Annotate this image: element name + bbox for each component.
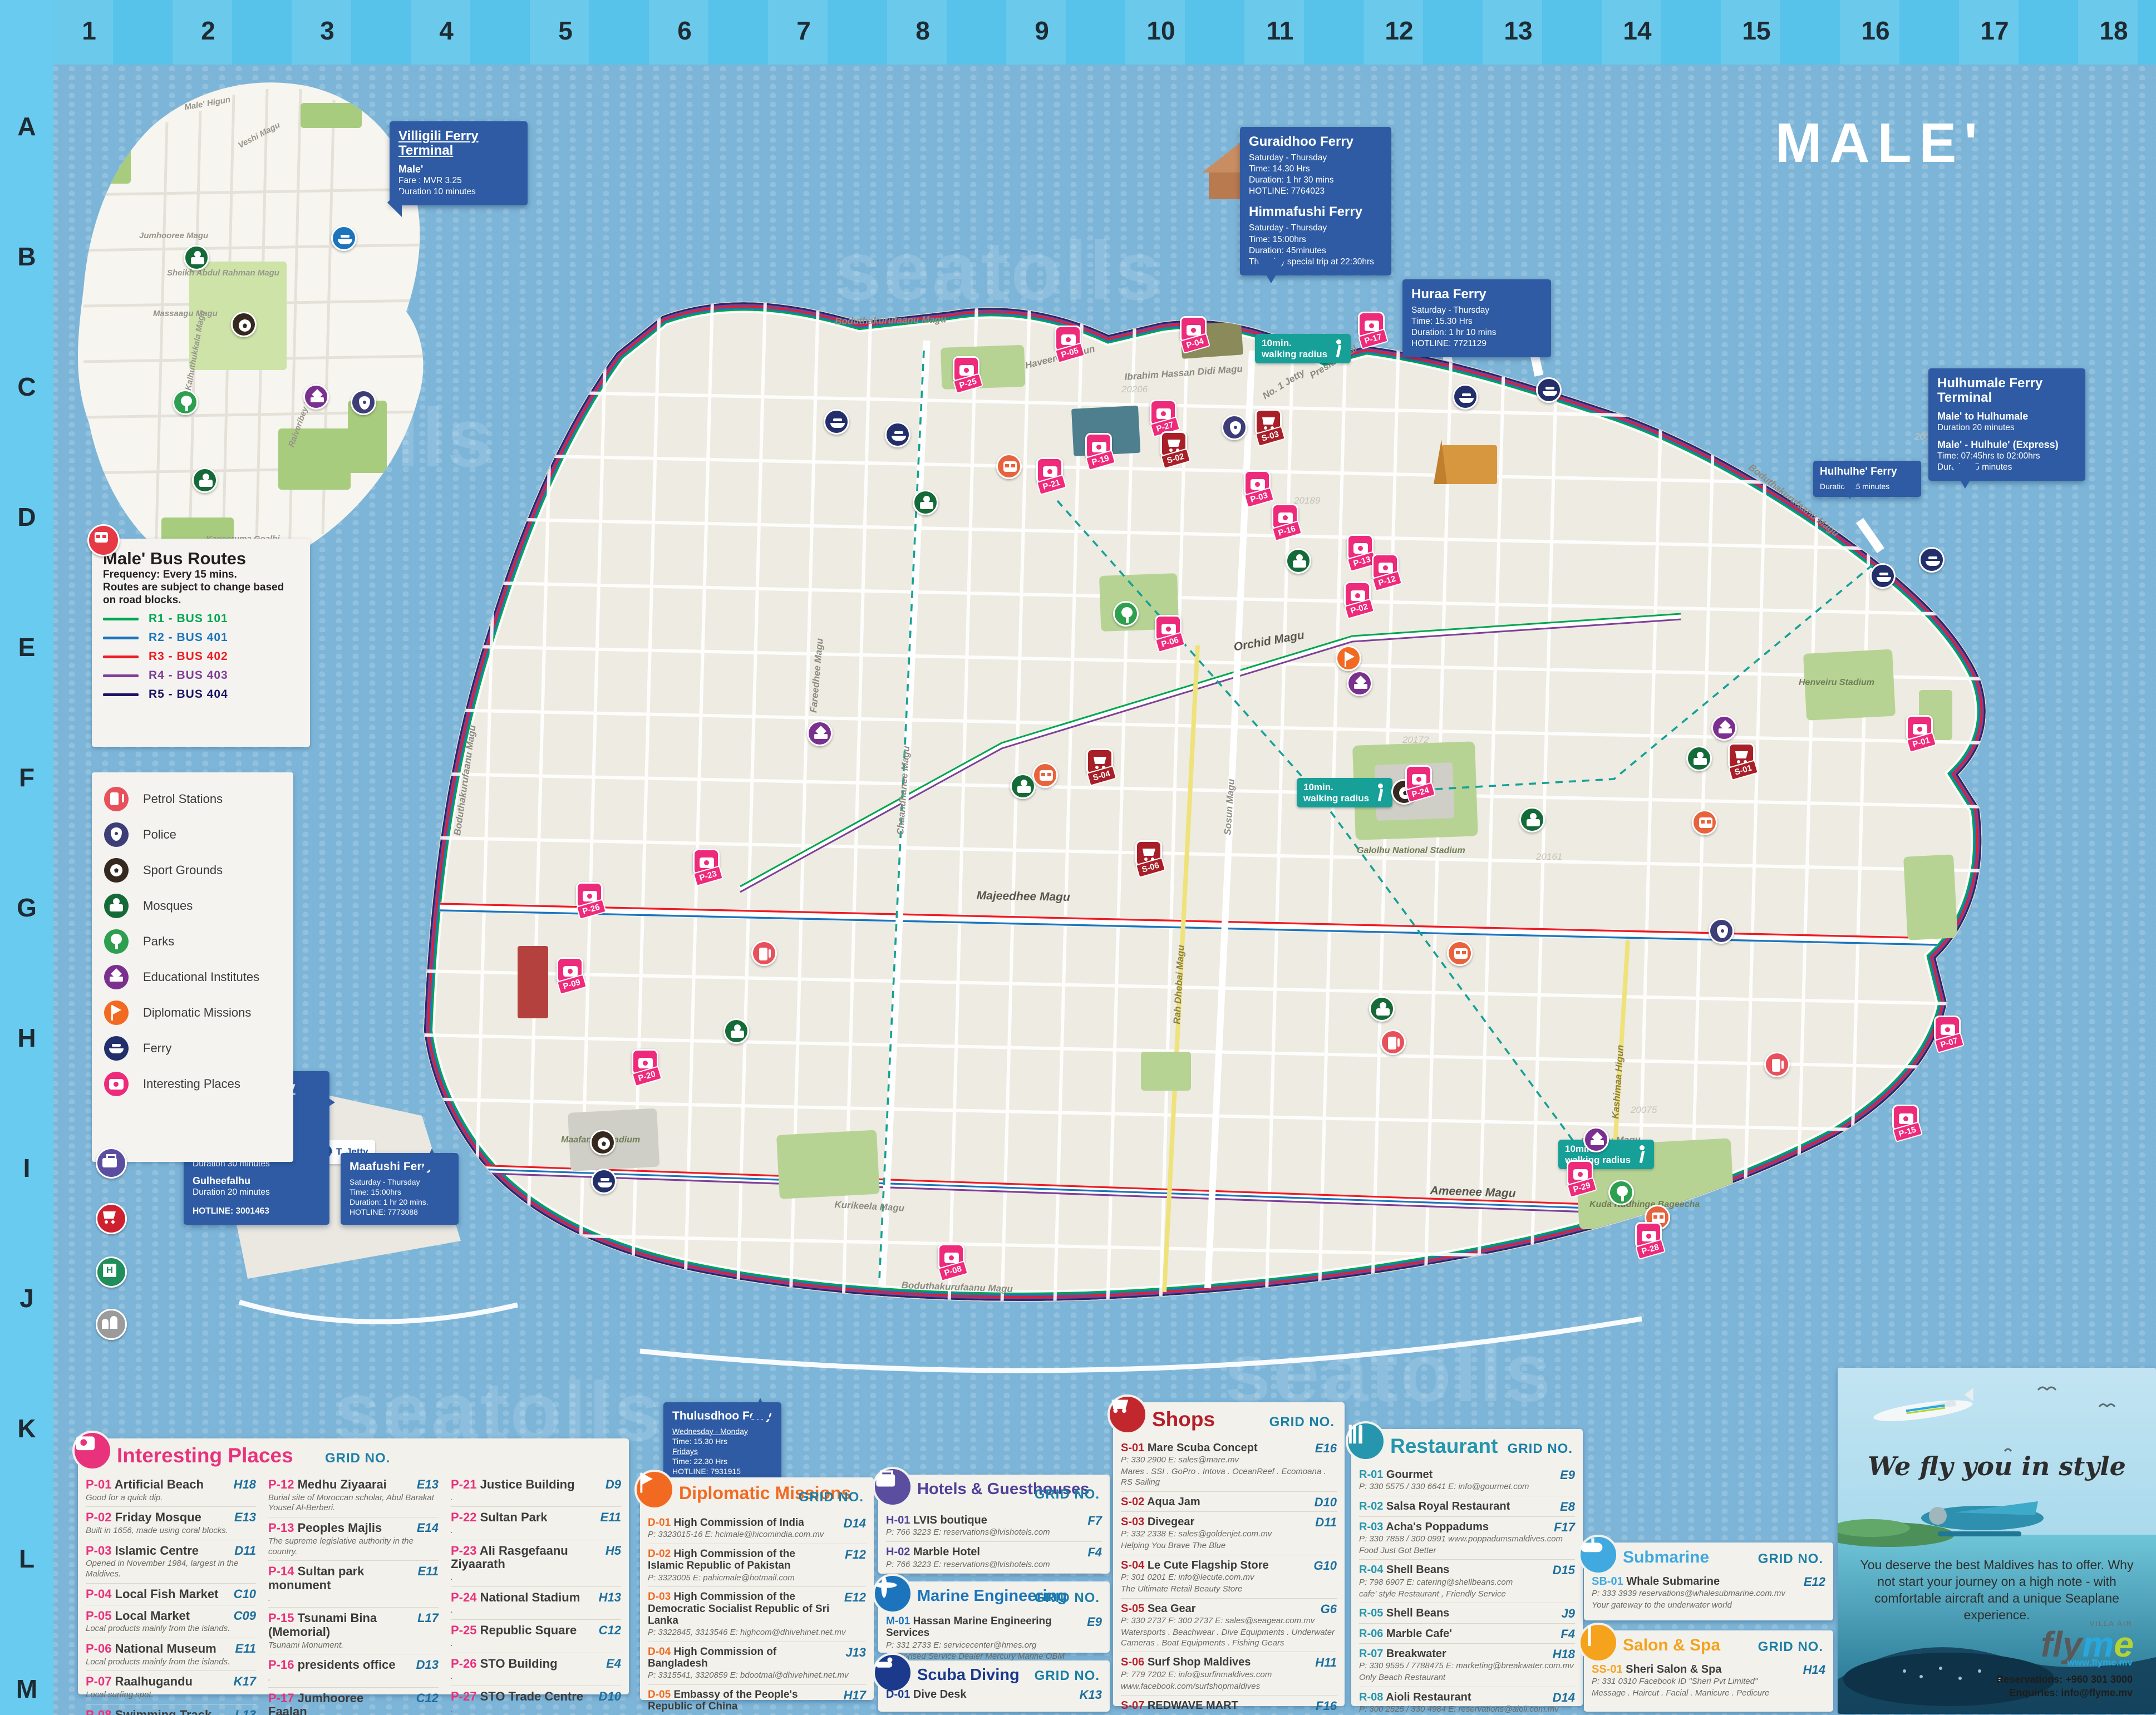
block-number: 20206 (1121, 384, 1148, 395)
bus-icon (87, 524, 120, 556)
panel-title: Salon & Spa (1623, 1636, 1720, 1655)
scuba-list: D-01 Dive DeskK13 (886, 1688, 1102, 1704)
legend-icon (104, 858, 129, 883)
education-icon (1583, 1127, 1609, 1152)
legend-row: Mosques (104, 894, 281, 918)
diplomatic-list: D-01 High Commission of IndiaD14 P: 3323… (648, 1513, 866, 1715)
panel-title: Scuba Diving (917, 1666, 1020, 1684)
legend-row: Diplomatic Missions (104, 1001, 281, 1025)
legend-row: Sport Grounds (104, 858, 281, 883)
bus-note: Routes are subject to change based on ro… (103, 581, 299, 607)
mosque-icon (1686, 746, 1712, 771)
directory-entry: H-02 Marble HotelF4 P: 766 3223 E: reser… (886, 1542, 1102, 1574)
police-icon (1222, 415, 1247, 440)
map-pin: P-05 (1055, 326, 1081, 355)
directory-entry: SS-01 Sheri Salon & SpaH14 P: 331 0310 F… (1592, 1659, 1825, 1702)
police-icon (351, 390, 376, 415)
map-pin: P-04 (1180, 316, 1207, 346)
education-icon (807, 721, 833, 746)
panel-title: Interesting Places (117, 1444, 293, 1467)
directory-entry: D-01 Dive DeskK13 (886, 1688, 1102, 1704)
street-label: Sheikh Abdul Rahman Magu (167, 268, 279, 278)
map-pin: P-28 (1635, 1222, 1662, 1251)
directory-entry: P-26 STO BuildingE4 . (451, 1653, 621, 1686)
submarine-list: SB-01 Whale SubmarineE12 P: 333 3939 res… (1592, 1571, 1825, 1614)
legend-row: Ferry (104, 1036, 281, 1061)
ad-body: You deserve the best Maldives has to off… (1854, 1557, 2139, 1624)
map-pin: S-04 (1086, 748, 1113, 778)
route-label: R2 - BUS 401 (149, 631, 228, 644)
legend-icon (104, 787, 129, 811)
grid-no-label: GRID NO. (1035, 1668, 1100, 1684)
directory-entry: R-07 BreakwaterH18 P: 330 9595 / 7788475… (1359, 1644, 1575, 1687)
panel-hotels: Hotels & Guesthouses GRID NO. H-01 LVIS … (878, 1475, 1110, 1574)
shops-list: S-01 Mare Scuba ConceptE16 P: 330 2900 E… (1121, 1438, 1337, 1715)
hulhumale-ferry-terminal-callout: Hulhumale Ferry Terminal Male' to Hulhum… (1928, 368, 2085, 481)
panel-restaurant: Restaurant GRID NO. R-01 GourmetE9 P: 33… (1351, 1429, 1583, 1706)
maafushi-ferry-callout: Maafushi Ferry Saturday - Thursday Time:… (341, 1153, 459, 1225)
panel-shops: Shops GRID NO. S-01 Mare Scuba ConceptE1… (1113, 1402, 1345, 1706)
map-pin: S-03 (1255, 409, 1282, 438)
map-pin: S-06 (1135, 840, 1162, 870)
education-icon (1347, 671, 1372, 696)
bus-route-row: R4 - BUS 403 (103, 669, 299, 682)
street-label: Majeedhee Magu (977, 889, 1070, 904)
map-pin: P-24 (1405, 765, 1432, 795)
flag-icon (634, 1470, 675, 1510)
legend-icon (104, 1036, 129, 1061)
panel-submarine: Submarine GRID NO. SB-01 Whale Submarine… (1584, 1542, 1833, 1620)
landmark-icon (96, 1309, 127, 1340)
route-line-swatch (103, 618, 139, 620)
thulusdhoo-ferry-callout: Thulusdhoo Ferry Wednesday - Monday Time… (663, 1402, 781, 1485)
fork-icon (1346, 1421, 1386, 1461)
salon-list: SS-01 Sheri Salon & SpaH14 P: 331 0310 F… (1592, 1659, 1825, 1702)
panel-diplomatic-missions: Diplomatic Missions GRID NO. D-01 High C… (640, 1477, 874, 1700)
directory-entry: P-25 Republic SquareC12 . (451, 1620, 621, 1653)
directory-entry: P-22 Sultan ParkE11 . (451, 1507, 621, 1540)
map-pin: P-08 (938, 1244, 964, 1273)
diver-icon (873, 1653, 913, 1693)
directory-entry: D-04 High Commission of BangladeshJ13 P:… (648, 1642, 866, 1685)
directory-entry: P-12 Medhu ZiyaaraiE13 Burial site of Mo… (268, 1474, 439, 1517)
legend-row: Interesting Places (104, 1072, 281, 1096)
panel-scuba-diving: Scuba Diving GRID NO. D-01 Dive DeskK13 (878, 1660, 1110, 1712)
pedestrian-icon (1636, 1145, 1647, 1164)
legend-title: Male' Bus Routes (103, 549, 299, 569)
sport-ground-icon (590, 1130, 616, 1155)
grid-no-label: GRID NO. (1035, 1590, 1100, 1606)
mosque-icon (723, 1018, 749, 1044)
route-label: R1 - BUS 101 (149, 612, 228, 625)
bus-routes-legend: Male' Bus Routes Frequency: Every 15 min… (92, 539, 310, 747)
area-label: Henveiru Stadium (1799, 678, 1874, 688)
bus-stop-icon (1692, 810, 1717, 835)
area-label: Galolhu National Stadium (1357, 846, 1465, 856)
walking-radius-badge: 10min.walking radius (1297, 778, 1392, 807)
ad-contacts: Reservations: +960 301 3000 Enquiries: i… (1996, 1673, 2133, 1700)
education-icon (303, 384, 329, 410)
hulhulhe-ferry-callout: Hulhulhe' Ferry Duration 15 minutes (1813, 461, 1921, 497)
legend-label: Mosques (143, 899, 193, 913)
petrol-icon (1380, 1029, 1406, 1055)
directory-entry: P-05 Local MarketC09 Local products main… (86, 1605, 256, 1638)
directory-entry: P-24 National StadiumH13 . (451, 1587, 621, 1620)
directory-entry: S-06 Surf Shop MaldivesH11 P: 779 7202 E… (1121, 1652, 1337, 1696)
ferry-icon (1453, 384, 1478, 410)
route-line-swatch (103, 693, 139, 696)
diplomatic-icon (1336, 645, 1361, 671)
park-icon (1608, 1180, 1634, 1205)
panel-title: Restaurant (1390, 1435, 1498, 1458)
block-number: 20161 (1536, 851, 1562, 863)
ad-tagline: We fly you in style (1838, 1451, 2156, 1481)
map-pin: P-02 (1344, 581, 1371, 611)
flyme-advert: We fly you in style You deserve the best… (1838, 1368, 2156, 1714)
panel-interesting-places: Interesting Places GRID NO. P-01 Artific… (78, 1438, 629, 1694)
route-line-swatch (103, 656, 139, 658)
legend-icon (104, 1072, 129, 1096)
route-line-swatch (103, 637, 139, 639)
legend-row: Parks (104, 929, 281, 954)
directory-entry: D-02 High Commission of the Islamic Repu… (648, 1544, 866, 1587)
street-label: Jumhooree Magu (139, 231, 208, 240)
directory-entry: D-03 High Commission of the Democratic S… (648, 1587, 866, 1642)
panel-marine-engineering: Marine Engineering GRID NO. M-01 Hassan … (878, 1581, 1110, 1653)
mosque-icon (913, 490, 938, 515)
legend-label: Interesting Places (143, 1077, 240, 1091)
bus-route-row: R3 - BUS 402 (103, 650, 299, 663)
map-pin: P-17 (1358, 312, 1385, 341)
ferry-icon (824, 409, 849, 435)
map-pin: P-23 (693, 849, 720, 878)
directory-entry: S-07 REDWAVE MARTF16 (1121, 1696, 1337, 1715)
restaurant-list: R-01 GourmetE9 P: 330 5575 / 330 6641 E:… (1359, 1465, 1575, 1715)
directory-entry: R-03 Acha's PoppadumsF17 P: 330 7858 / 3… (1359, 1517, 1575, 1560)
street-label: Boduthakurufaanu Magu (835, 314, 947, 327)
ad-url: www.flyme.mv (2068, 1657, 2133, 1668)
legend-icon (104, 929, 129, 954)
map-pin: S-02 (1160, 431, 1187, 461)
map-pin: P-26 (576, 882, 603, 911)
legend-label: Petrol Stations (143, 792, 223, 806)
directory-entry: P-14 Sultan park monumentE11 . (268, 1561, 439, 1608)
directory-entry: R-02 Salsa Royal RestaurantE8 (1359, 1496, 1575, 1516)
petrol-icon (1764, 1052, 1790, 1077)
map-pin: P-06 (1155, 615, 1182, 644)
legend-label: Ferry (143, 1041, 171, 1056)
directory-entry: S-01 Mare Scuba ConceptE16 P: 330 2900 E… (1121, 1438, 1337, 1492)
ferry-icon (331, 225, 357, 251)
directory-entry: P-06 National MuseumE11 Local products m… (86, 1638, 256, 1671)
directory-entry: P-07 RaalhuganduK17 Local surfing spot. (86, 1671, 256, 1704)
directory-entry: M-01 Hassan Marine Engineering ServicesE… (886, 1611, 1102, 1665)
street-label: Massaagu Magu (153, 309, 218, 318)
ferry-icon (885, 422, 910, 447)
directory-entry: S-04 Le Cute Flagship StoreG10 P: 301 02… (1121, 1555, 1337, 1599)
villigili-ferry-terminal-callout: Villigili Ferry Terminal Male' Fare : MV… (390, 121, 528, 205)
legend-icon (104, 965, 129, 989)
marine-list: M-01 Hassan Marine Engineering ServicesE… (886, 1611, 1102, 1665)
directory-entry: P-27 STO Trade CentreD10 . (451, 1686, 621, 1715)
map-pin: P-03 (1244, 470, 1271, 500)
pedestrian-icon (1333, 339, 1344, 358)
scissors-icon (1578, 1623, 1618, 1663)
shops-icon (96, 1203, 127, 1234)
directory-entry: R-01 GourmetE9 P: 330 5575 / 330 6641 E:… (1359, 1465, 1575, 1496)
route-label: R5 - BUS 404 (149, 688, 228, 701)
map-pin: P-09 (557, 957, 583, 987)
walking-radius-badge: 10min.walking radius (1255, 334, 1351, 363)
directory-entry: R-05 Shell BeansJ9 (1359, 1603, 1575, 1623)
legend-label: Police (143, 827, 176, 842)
map-pin: P-15 (1892, 1105, 1919, 1134)
park-icon (1113, 601, 1139, 627)
route-line-swatch (103, 674, 139, 677)
education-icon (1711, 715, 1737, 741)
legend-list: Petrol Stations Police Sport Grounds Mos… (104, 787, 281, 1096)
block-number: 20075 (1631, 1105, 1657, 1116)
directory-entry: P-04 Local Fish MarketC10 (86, 1584, 256, 1605)
legend-row: Police (104, 822, 281, 847)
directory-entry: P-17 Jumhooree FaalanC12 Official jetty. (268, 1688, 439, 1715)
bus-stop-icon (1032, 762, 1058, 788)
grid-no-label: GRID NO. (1269, 1415, 1335, 1430)
legend-label: Parks (143, 934, 174, 949)
propeller-icon (873, 1574, 913, 1614)
directory-entry: S-02 Aqua JamD10 (1121, 1492, 1337, 1512)
area-label: Kuda Kudhinge Bageecha (1589, 1200, 1700, 1210)
directory-entry: P-16 presidents officeD13 . (268, 1654, 439, 1687)
ferry-icon (1919, 547, 1945, 573)
ferry-icon (591, 1169, 617, 1194)
submarine-icon (1578, 1535, 1618, 1575)
bus-route-row: R5 - BUS 404 (103, 688, 299, 701)
map-pin: S-01 (1728, 743, 1755, 772)
ferry-icon (1870, 563, 1896, 589)
map-pin: P-19 (1085, 433, 1112, 462)
legend-label: Educational Institutes (143, 970, 259, 984)
cart-icon (1107, 1394, 1148, 1435)
hospital-icon (96, 1256, 127, 1288)
directory-entry: H-01 LVIS boutiqueF7 P: 766 3223 E: rese… (886, 1510, 1102, 1542)
panel-title: Shops (1152, 1408, 1215, 1431)
grid-no-label: GRID NO. (1758, 1639, 1823, 1655)
map-pin: P-13 (1347, 534, 1374, 564)
directory-entry: R-08 Aioli RestaurantD14 P: 300 2525 / 3… (1359, 1687, 1575, 1715)
map-pin: P-12 (1372, 554, 1399, 583)
directory-entry: D-01 High Commission of IndiaD14 P: 3323… (648, 1513, 866, 1544)
directory-entry: R-04 Shell BeansD15 P: 798 6907 E: cater… (1359, 1560, 1575, 1603)
directory-entry: P-03 Islamic CentreD11 Opened in Novembe… (86, 1540, 256, 1584)
mosque-icon (1010, 773, 1036, 799)
directory-entry: P-13 Peoples MajlisE14 The supreme legis… (268, 1517, 439, 1561)
block-number: 20172 (1402, 735, 1429, 746)
directory-entry: S-03 DivegearD11 P: 332 2338 E: sales@go… (1121, 1512, 1337, 1555)
camera-icon (72, 1431, 112, 1471)
panel-salon-spa: Salon & Spa GRID NO. SS-01 Sheri Salon &… (1584, 1630, 1833, 1712)
grid-no-label: GRID NO. (799, 1490, 864, 1505)
directory-entry: SB-01 Whale SubmarineE12 P: 333 3939 res… (1592, 1571, 1825, 1614)
map-pin: P-20 (632, 1049, 658, 1078)
directory-entry: P-23 Ali Rasgefaanu ZiyaarathH5 . (451, 1540, 621, 1587)
hotels-icon (96, 1147, 127, 1179)
legend-icon (104, 894, 129, 918)
map-symbols-legend: Petrol Stations Police Sport Grounds Mos… (92, 772, 293, 1162)
map-pin: P-07 (1934, 1016, 1961, 1045)
directory-entry: S-05 Sea GearG6 P: 330 2737 F: 300 2737 … (1121, 1599, 1337, 1653)
bus-stop-icon (1447, 940, 1473, 966)
mosque-icon (1286, 548, 1311, 574)
bus-route-row: R2 - BUS 401 (103, 631, 299, 644)
police-icon (1709, 918, 1734, 944)
grid-no-label: GRID NO. (1758, 1551, 1823, 1567)
route-label: R3 - BUS 402 (149, 650, 228, 663)
ferry-icon (1536, 377, 1562, 403)
grid-no-label: GRID NO. (1508, 1441, 1573, 1457)
legend-icon (104, 822, 129, 847)
hotels-list: H-01 LVIS boutiqueF7 P: 766 3223 E: rese… (886, 1510, 1102, 1574)
bus-route-row: R1 - BUS 101 (103, 612, 299, 625)
legend-row: Educational Institutes (104, 965, 281, 989)
legend-label: Sport Grounds (143, 863, 223, 878)
bus-stop-icon (996, 454, 1022, 479)
grid-no-label: GRID NO. (325, 1451, 390, 1466)
map-pin: P-16 (1272, 504, 1298, 533)
grid-no-label: GRID NO. (1035, 1487, 1100, 1502)
route-label: R4 - BUS 403 (149, 669, 228, 682)
map-pin: P-27 (1150, 400, 1177, 429)
bus-route-list: R1 - BUS 101 R2 - BUS 401 R3 - BUS 402 R… (103, 612, 299, 701)
mosque-icon (1519, 807, 1545, 832)
directory-entry: P-01 Artificial BeachH18 Good for a quic… (86, 1474, 256, 1507)
directory-entry: D-05 Embassy of the People's Republic of… (648, 1685, 866, 1715)
legend-row: Petrol Stations (104, 787, 281, 811)
legend-icon (104, 1001, 129, 1025)
suitcase-icon (873, 1467, 913, 1507)
huraa-ferry-callout: Huraa Ferry Saturday - Thursday Time: 15… (1402, 279, 1551, 357)
legend-label: Diplomatic Missions (143, 1006, 251, 1020)
directory-entry: P-21 Justice BuildingD9 . (451, 1474, 621, 1507)
map-pin: P-01 (1906, 715, 1933, 745)
petrol-icon (751, 940, 777, 966)
places-list: P-01 Artificial BeachH18 Good for a quic… (86, 1474, 621, 1715)
male-tourist-map: seatolls seatolls seatolls seatolls seat… (0, 0, 2156, 1715)
park-icon (173, 390, 198, 415)
guraidhoo-himmafushi-ferry-callout: Guraidhoo Ferry Saturday - Thursday Time… (1240, 127, 1391, 275)
mosque-icon (192, 467, 218, 493)
directory-entry: P-02 Friday MosqueE13 Built in 1656, mad… (86, 1507, 256, 1540)
mosque-icon (184, 245, 209, 270)
mosque-icon (1369, 996, 1395, 1022)
pedestrian-icon (1375, 783, 1386, 802)
bus-frequency: Frequency: Every 15 mins. (103, 569, 299, 581)
directory-entry: P-08 Swimming TrackL13 Local swimming tr… (86, 1704, 256, 1715)
directory-entry: P-15 Tsunami Bina (Memorial)L17 Tsunami … (268, 1608, 439, 1654)
panel-title: Submarine (1623, 1548, 1709, 1567)
map-pin: P-29 (1567, 1160, 1593, 1190)
map-pin: P-25 (953, 356, 979, 386)
map-pin: P-21 (1036, 457, 1063, 487)
directory-entry: R-06 Marble Cafe'F4 (1359, 1624, 1575, 1644)
sport-ground-icon (231, 312, 257, 337)
